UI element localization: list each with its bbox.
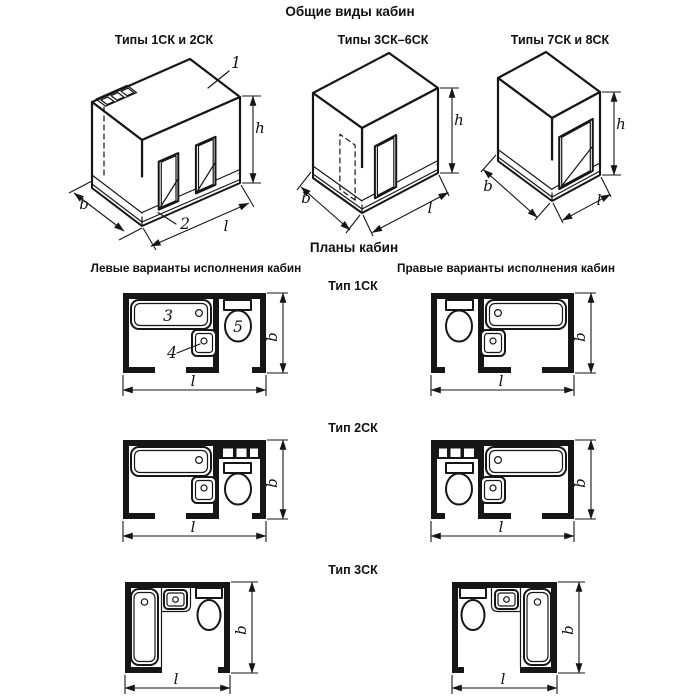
page-title: Общие виды кабин — [285, 4, 414, 19]
wall-right — [224, 582, 230, 673]
dimension-height: h — [242, 96, 265, 183]
wall-bottom-segment — [431, 367, 445, 373]
dimension-label-b: b — [559, 625, 577, 635]
wall-top — [123, 293, 266, 299]
extension-line — [297, 172, 311, 190]
extension-line — [601, 177, 611, 197]
bathtub — [521, 588, 552, 667]
dimension-label-h: h — [255, 119, 265, 137]
extension-line — [553, 203, 563, 223]
wall-left — [452, 582, 458, 673]
callout-toilet: 5 — [233, 318, 243, 336]
toilet-bowl — [198, 600, 221, 630]
plan-2sk-right: b l — [431, 440, 596, 542]
wall-bottom-segment — [123, 513, 155, 519]
toilet — [446, 463, 473, 505]
doorway — [159, 153, 179, 210]
toilet-tank — [224, 463, 251, 473]
vent-cell — [439, 449, 447, 458]
vent-cell — [223, 449, 233, 458]
dimension-height: h — [440, 88, 464, 173]
doorway — [375, 135, 396, 198]
toilet-bowl — [462, 600, 485, 630]
dimension-length: l — [431, 518, 574, 542]
callout-base: 2 — [158, 213, 190, 234]
vent-cell — [451, 449, 461, 458]
washbasin — [481, 477, 505, 503]
vent-unit — [219, 446, 260, 459]
right-variants-heading: Правые варианты исполнения кабин — [397, 261, 615, 275]
gost-cabin-drawing-page: Общие виды кабин Типы 1СК и 2СК Типы 3СК… — [0, 0, 700, 700]
vent-cell — [250, 449, 258, 458]
toilet-bowl — [225, 474, 251, 505]
bathtub-outline — [131, 589, 158, 665]
extension-line — [363, 215, 373, 236]
plan-3sk-right: b l — [452, 582, 585, 694]
toilet — [196, 588, 222, 630]
row-label-3sk: Тип 3СК — [328, 563, 378, 577]
wall-top — [123, 440, 266, 446]
dimension-label-l: l — [191, 372, 196, 390]
dimension-length: l — [125, 670, 230, 694]
view-title-1sk-2sk: Типы 1СК и 2СК — [115, 33, 214, 47]
toilet-tank — [196, 588, 222, 598]
dimension-label-b: b — [263, 478, 281, 488]
dimension-width: b — [263, 293, 288, 373]
vent-cell — [464, 449, 474, 458]
dimension-label-b: b — [571, 332, 589, 342]
dimension-length: l — [123, 518, 266, 542]
toilet-tank — [460, 588, 486, 598]
dimension-label-l: l — [499, 372, 504, 390]
isometric-view-3sk-6sk: h b l — [297, 53, 464, 236]
dimension-label-l: l — [499, 518, 504, 536]
dimension-length: l — [452, 670, 557, 694]
view-title-7sk-8sk: Типы 7СК и 8СК — [511, 33, 610, 47]
callout-number: 1 — [231, 54, 241, 72]
washbasin — [192, 477, 216, 503]
plan-2sk-left: b l — [123, 440, 288, 542]
vent-cell — [237, 449, 247, 458]
callout-sink: 4 — [166, 344, 177, 362]
plans-title: Планы кабин — [310, 240, 398, 255]
wall-bottom-segment — [431, 513, 445, 519]
wall-bottom-segment — [123, 367, 155, 373]
dimension-label-b: b — [79, 195, 89, 213]
dimension-length: l — [123, 372, 266, 396]
dimension-width: b — [263, 440, 288, 519]
extension-line — [69, 181, 92, 193]
bathtub — [486, 447, 566, 476]
toilet-tank — [446, 300, 473, 310]
wall-bottom-segment — [252, 367, 266, 373]
wall-bottom-segment — [252, 513, 266, 519]
toilet — [460, 588, 486, 630]
dimension-label-b: b — [483, 177, 493, 195]
dimension-label-l: l — [428, 199, 433, 217]
toilet-bowl — [446, 311, 472, 342]
callout-bath: 3 — [163, 307, 173, 325]
wall-bottom-segment — [478, 513, 511, 519]
wall-left — [123, 440, 129, 519]
isometric-view-7sk-8sk: h b l — [481, 52, 626, 223]
bathtub-outline — [524, 589, 551, 665]
drawing-canvas: Общие виды кабин Типы 1СК и 2СК Типы 3СК… — [0, 0, 700, 700]
bathtub-outline — [486, 447, 566, 476]
view-title-3sk-6sk: Типы 3СК–6СК — [338, 33, 429, 47]
toilet-tank — [446, 463, 473, 473]
toilet: 5 — [224, 300, 251, 342]
left-variants-heading: Левые варианты исполнения кабин — [91, 261, 302, 275]
doorway — [196, 137, 216, 194]
toilet — [446, 300, 473, 342]
dimension-label-l: l — [191, 518, 196, 536]
dimension-width: b — [231, 582, 258, 673]
plan-3sk-left: b l — [125, 582, 258, 694]
plan-1sk-left: 3 4 5 b l — [123, 293, 288, 396]
wall-bottom-segment — [125, 667, 162, 673]
wall-bottom-segment — [520, 667, 557, 673]
door-opening — [375, 135, 396, 198]
wall-bottom-segment — [478, 367, 511, 373]
wall-bottom-segment — [542, 367, 574, 373]
plan-1sk-right: b l — [431, 293, 596, 396]
dimension-label-b: b — [232, 625, 250, 635]
wall-bottom-segment — [542, 513, 574, 519]
dimension-label-l: l — [501, 670, 506, 688]
row-label-2sk: Тип 2СК — [328, 421, 378, 435]
dimension-label-l: l — [597, 191, 602, 209]
wall-left — [123, 293, 129, 373]
dimension-height: h — [602, 92, 626, 175]
bathtub: 3 — [131, 300, 211, 329]
wall-bottom-segment — [218, 667, 230, 673]
dimension-width: b — [571, 293, 596, 373]
dimension-length: l — [431, 372, 574, 396]
dimension-width: b — [558, 582, 585, 673]
dimension-label-h: h — [616, 115, 626, 133]
toilet-tank — [224, 300, 251, 310]
wall-left — [431, 440, 437, 519]
extension-line — [346, 215, 360, 233]
dimension-label-l: l — [224, 217, 229, 235]
toilet — [224, 463, 251, 505]
bathtub — [486, 300, 566, 329]
dimension-line — [563, 194, 611, 220]
wall-top — [431, 293, 574, 299]
dimension-label-b: b — [571, 478, 589, 488]
extension-line — [143, 228, 156, 250]
bathtub-outline — [486, 300, 566, 329]
vent-unit — [437, 446, 478, 459]
wall-left — [431, 293, 437, 373]
extension-line — [481, 155, 496, 172]
isometric-view-1sk-2sk: 1 2 h b l — [69, 54, 265, 250]
bathtub-outline — [131, 447, 211, 476]
washbasin — [162, 588, 191, 612]
dimension-label-b: b — [263, 332, 281, 342]
row-label-1sk: Тип 1СК — [328, 279, 378, 293]
washbasin: 4 — [166, 330, 216, 362]
dimension-label-h: h — [454, 111, 464, 129]
bathtub — [131, 588, 162, 667]
wall-bottom-segment — [452, 667, 464, 673]
toilet-bowl — [446, 474, 472, 505]
wall-top — [431, 440, 574, 446]
washbasin — [492, 588, 521, 612]
dimension-width: b — [571, 440, 596, 519]
dimension-label-l: l — [174, 670, 179, 688]
dimension-label-b: b — [301, 189, 311, 207]
bathtub — [131, 447, 211, 476]
washbasin — [481, 330, 505, 356]
